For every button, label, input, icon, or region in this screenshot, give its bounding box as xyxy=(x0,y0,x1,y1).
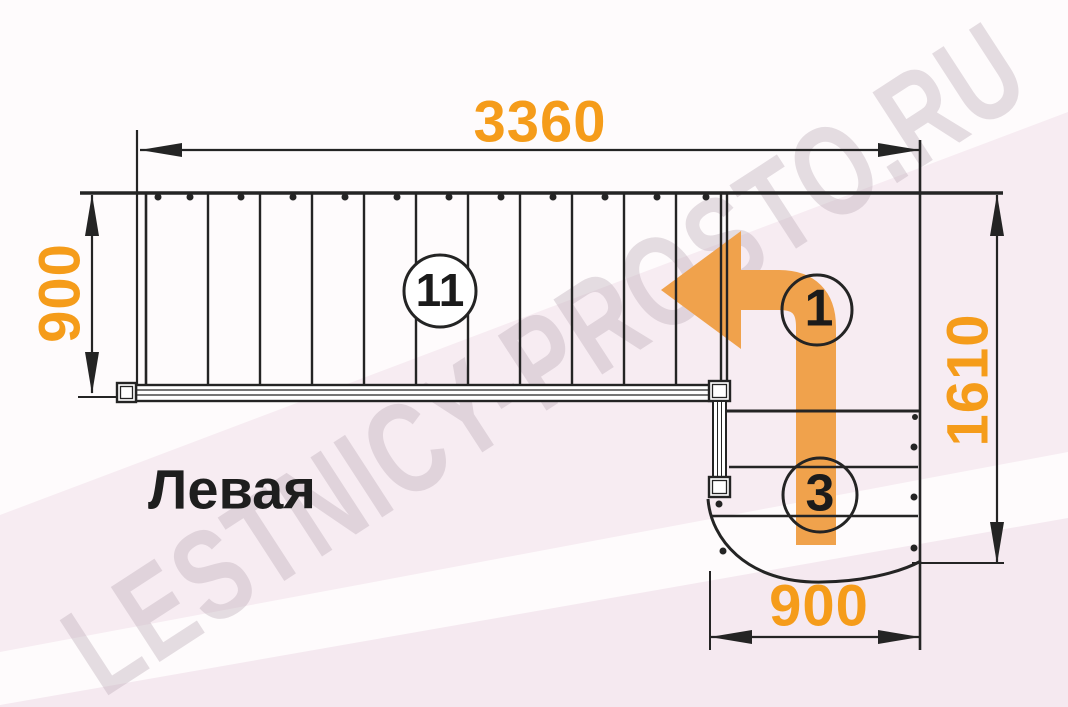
newel-post xyxy=(709,381,730,508)
lower-flight-step-count: 3 xyxy=(806,464,835,524)
orientation-title: Левая xyxy=(148,457,316,522)
dimension-left-label: 900 xyxy=(27,243,94,343)
dimension-right-label: 1610 xyxy=(935,313,1002,446)
dimension-bottom-label: 900 xyxy=(769,573,869,640)
dimension-top-label: 3360 xyxy=(473,89,606,156)
upper-flight-stringer xyxy=(117,383,712,402)
staircase-plan-diagram: LESTNICY-PROSTO.RU xyxy=(0,0,1068,707)
upper-flight-step-count: 11 xyxy=(416,263,465,317)
turn-step-number: 1 xyxy=(805,279,834,339)
